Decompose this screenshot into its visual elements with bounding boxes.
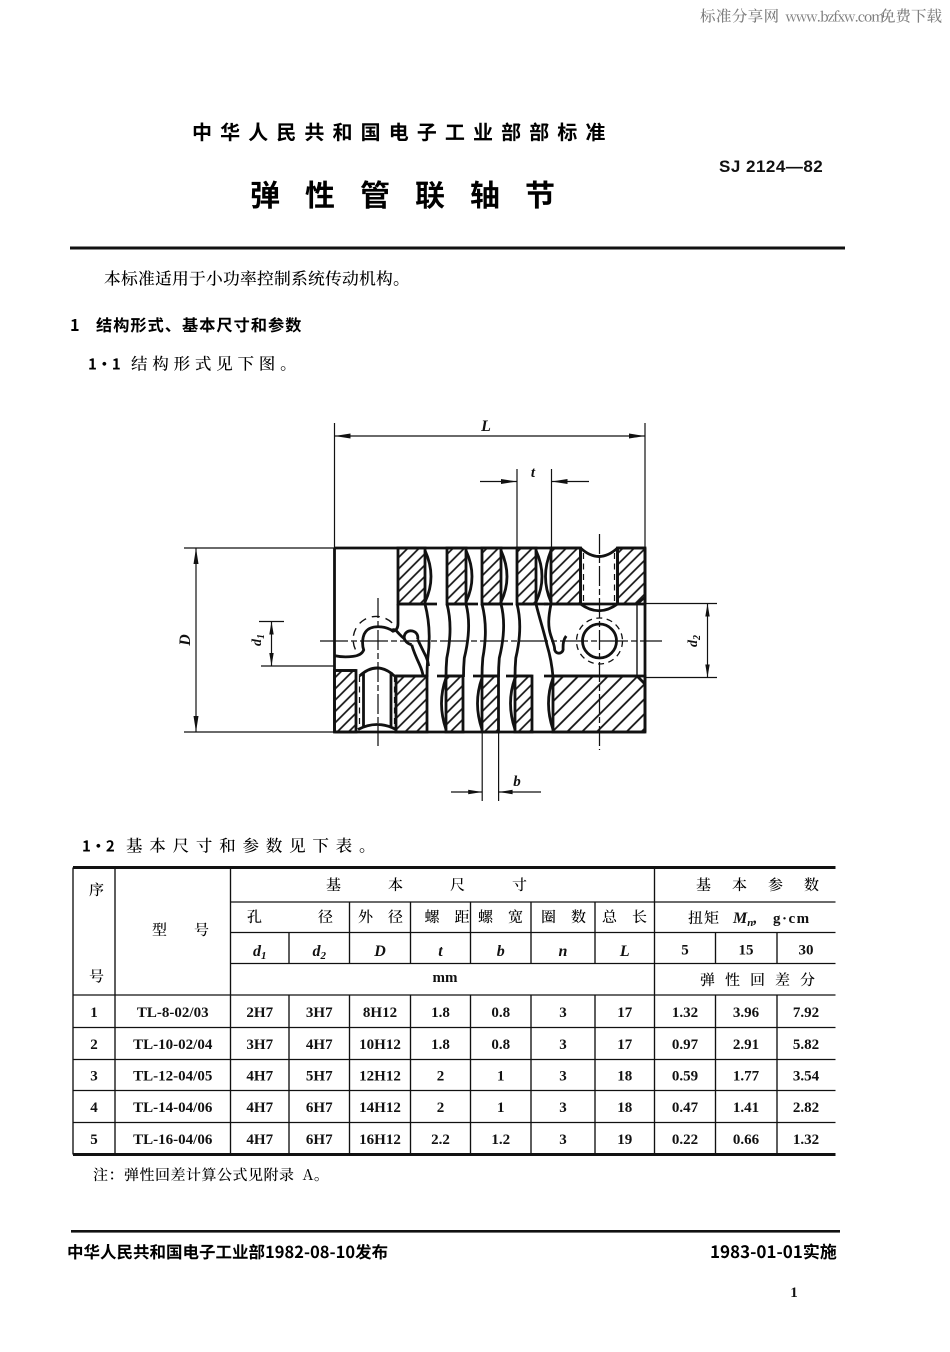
svg-text:15: 15 xyxy=(739,943,754,959)
svg-text:t: t xyxy=(438,943,443,960)
svg-text:TL-16-04/06: TL-16-04/06 xyxy=(133,1132,213,1148)
svg-text:b: b xyxy=(497,943,505,960)
svg-text:d2: d2 xyxy=(686,635,703,647)
svg-text:14H12: 14H12 xyxy=(359,1100,401,1116)
svg-text:1.2: 1.2 xyxy=(491,1132,510,1148)
svg-text:3: 3 xyxy=(559,1037,567,1053)
svg-text:5: 5 xyxy=(681,943,689,959)
svg-text:TL-8-02/03: TL-8-02/03 xyxy=(137,1005,209,1021)
svg-text:4H7: 4H7 xyxy=(306,1037,333,1053)
svg-text:b: b xyxy=(513,774,521,790)
svg-text:2: 2 xyxy=(90,1037,98,1053)
svg-text:19: 19 xyxy=(617,1132,632,1148)
svg-text:1.32: 1.32 xyxy=(672,1005,698,1021)
svg-text:0.97: 0.97 xyxy=(672,1037,699,1053)
svg-text:0.22: 0.22 xyxy=(672,1132,698,1148)
svg-text:D: D xyxy=(373,943,386,960)
svg-text:TL-14-04/06: TL-14-04/06 xyxy=(133,1100,213,1116)
svg-text:g·cm: g·cm xyxy=(773,911,811,927)
svg-text:2.82: 2.82 xyxy=(793,1100,819,1116)
svg-text:1.41: 1.41 xyxy=(733,1100,759,1116)
svg-text:t: t xyxy=(531,465,536,481)
svg-text:3: 3 xyxy=(559,1069,567,1085)
svg-text:7.92: 7.92 xyxy=(793,1005,819,1021)
svg-text:4: 4 xyxy=(90,1100,98,1116)
svg-text:d1: d1 xyxy=(250,634,267,646)
svg-text:3.54: 3.54 xyxy=(793,1069,820,1085)
svg-text:12H12: 12H12 xyxy=(359,1069,401,1085)
svg-text:18: 18 xyxy=(617,1100,632,1116)
svg-text:0.8: 0.8 xyxy=(491,1005,510,1021)
svg-text:16H12: 16H12 xyxy=(359,1132,401,1148)
svg-text:1: 1 xyxy=(790,1285,798,1301)
svg-text:3: 3 xyxy=(559,1132,567,1148)
svg-text:6H7: 6H7 xyxy=(306,1132,333,1148)
svg-text:10H12: 10H12 xyxy=(359,1037,401,1053)
svg-text:1: 1 xyxy=(90,1005,98,1021)
svg-text:3.96: 3.96 xyxy=(733,1005,760,1021)
svg-text:18: 18 xyxy=(617,1069,632,1085)
svg-text:3: 3 xyxy=(559,1005,567,1021)
svg-text:1: 1 xyxy=(497,1069,505,1085)
svg-text:1.8: 1.8 xyxy=(431,1005,450,1021)
svg-text:TL-12-04/05: TL-12-04/05 xyxy=(133,1069,212,1085)
svg-text:8H12: 8H12 xyxy=(363,1005,397,1021)
svg-text:d2: d2 xyxy=(313,943,327,962)
svg-text:1: 1 xyxy=(497,1100,505,1116)
svg-text:3: 3 xyxy=(559,1100,567,1116)
svg-text:2H7: 2H7 xyxy=(246,1005,273,1021)
svg-text:5.82: 5.82 xyxy=(793,1037,819,1053)
svg-text:2.2: 2.2 xyxy=(431,1132,450,1148)
svg-text:0.47: 0.47 xyxy=(672,1100,699,1116)
svg-text:6H7: 6H7 xyxy=(306,1100,333,1116)
svg-text:1.32: 1.32 xyxy=(793,1132,819,1148)
svg-text:17: 17 xyxy=(617,1005,633,1021)
svg-text:n: n xyxy=(559,943,568,960)
svg-text:Mn,: Mn, xyxy=(732,910,757,929)
svg-text:30: 30 xyxy=(799,943,814,959)
svg-text:3: 3 xyxy=(90,1069,98,1085)
svg-text:L: L xyxy=(619,943,630,960)
svg-text:4H7: 4H7 xyxy=(246,1132,273,1148)
svg-text:17: 17 xyxy=(617,1037,633,1053)
svg-text:mm: mm xyxy=(433,970,458,986)
svg-text:2: 2 xyxy=(437,1069,445,1085)
svg-text:4H7: 4H7 xyxy=(246,1069,273,1085)
svg-text:1.8: 1.8 xyxy=(431,1037,450,1053)
svg-text:3H7: 3H7 xyxy=(306,1005,333,1021)
svg-text:L: L xyxy=(480,418,491,435)
svg-text:0.66: 0.66 xyxy=(733,1132,760,1148)
svg-text:D: D xyxy=(177,634,194,647)
svg-text:2.91: 2.91 xyxy=(733,1037,759,1053)
svg-text:5: 5 xyxy=(90,1132,98,1148)
svg-text:5H7: 5H7 xyxy=(306,1069,333,1085)
svg-text:d1: d1 xyxy=(253,943,267,962)
svg-text:3H7: 3H7 xyxy=(246,1037,273,1053)
svg-text:0.59: 0.59 xyxy=(672,1069,698,1085)
svg-text:4H7: 4H7 xyxy=(246,1100,273,1116)
svg-text:TL-10-02/04: TL-10-02/04 xyxy=(133,1037,213,1053)
svg-text:0.8: 0.8 xyxy=(491,1037,510,1053)
svg-text:SJ 2124—82: SJ 2124—82 xyxy=(719,157,823,176)
svg-text:1.77: 1.77 xyxy=(733,1069,760,1085)
svg-text:2: 2 xyxy=(437,1100,445,1116)
